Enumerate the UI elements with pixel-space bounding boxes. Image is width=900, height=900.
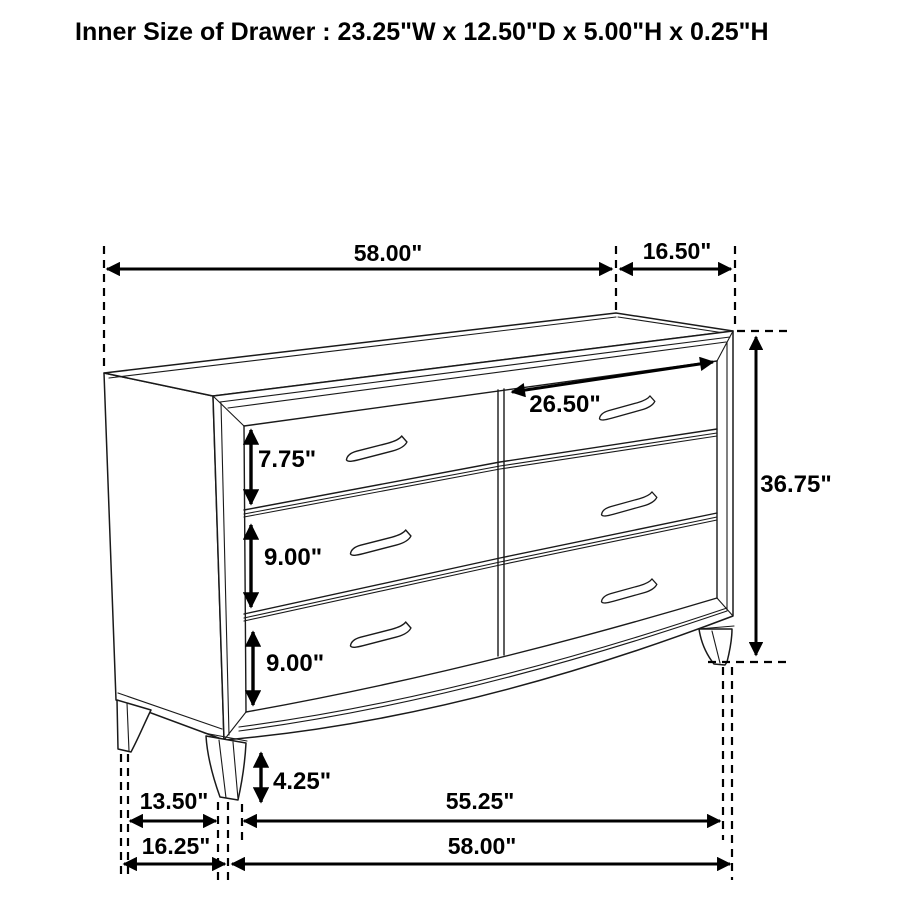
dim-label-overall-height: 36.75"	[760, 471, 831, 498]
dim-label-top-width: 58.00"	[354, 240, 422, 266]
front-face	[213, 331, 733, 740]
dim-label-top-drawer-height: 7.75"	[258, 446, 316, 473]
dim-leg-clear-span: 13.50"	[130, 788, 216, 821]
dim-label-base-width: 58.00"	[448, 833, 516, 859]
dim-label-leg-clear-span: 13.50"	[140, 788, 208, 814]
dim-label-top-depth: 16.50"	[643, 238, 711, 264]
back-left-leg	[117, 700, 151, 752]
dim-label-side-depth: 16.25"	[142, 833, 210, 859]
dim-side-depth: 16.25"	[124, 833, 225, 864]
dim-base-width: 58.00"	[232, 833, 730, 864]
front-left-leg	[206, 736, 246, 800]
dim-label-middle-drawer-height: 9.00"	[264, 544, 322, 571]
dim-label-bottom-drawer-height: 9.00"	[266, 650, 324, 677]
dim-label-front-leg-span: 55.25"	[446, 788, 514, 814]
dim-label-drawer-front-width: 26.50"	[529, 391, 600, 418]
dresser-drawing	[104, 313, 734, 800]
dim-top-depth: 16.50"	[620, 238, 735, 329]
side-panel	[104, 373, 224, 740]
dim-label-leg-height: 4.25"	[273, 768, 331, 795]
diagram-canvas: Inner Size of Drawer : 23.25"W x 12.50"D…	[0, 0, 900, 900]
dresser-dimension-drawing: 58.00" 16.50" 36.75" 26.50" 7.75" 9.00"	[0, 0, 900, 900]
dim-leg-height: 4.25"	[261, 753, 331, 802]
